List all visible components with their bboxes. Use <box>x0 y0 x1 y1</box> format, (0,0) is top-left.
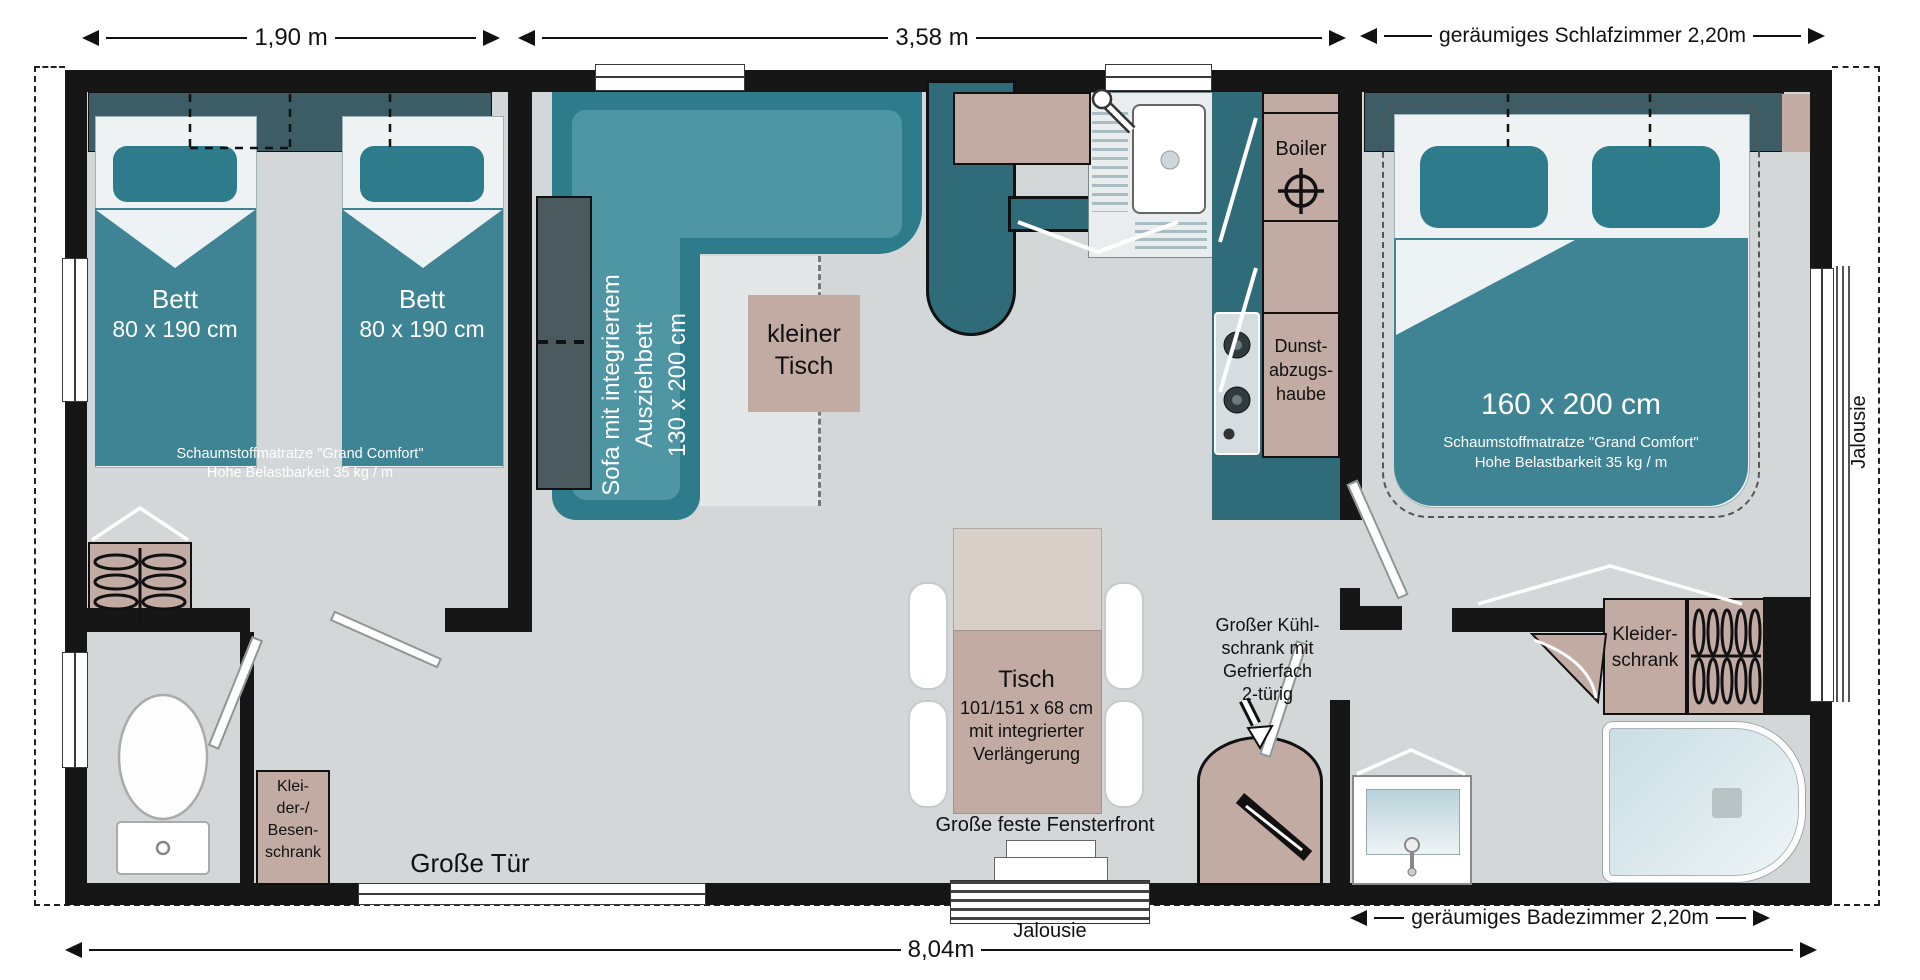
left-mattress-note-line2: Hohe Belastbarkeit 35 kg / m <box>130 465 470 481</box>
dim-bedroom-left-label: 1,90 m <box>254 24 327 52</box>
sofa-label-line1: Sofa mit integriertem <box>595 165 628 605</box>
dim-bathroom: geräumiges Badezimmer 2,20m <box>1350 906 1770 930</box>
sofa-armrest-cabinet <box>536 196 592 490</box>
small-table-label-line1: kleiner <box>748 320 860 349</box>
closet-label-line2: der-/ <box>256 800 330 818</box>
kitchen-counter-slab2 <box>1262 458 1340 520</box>
fridge-label-line4: 2-türig <box>1195 684 1340 705</box>
dim-total-width: 8,04m <box>65 936 1817 964</box>
dining-chair-1 <box>908 582 948 690</box>
plot-boundary-dashed-top-left <box>34 66 65 68</box>
dim-bathroom-label: geräumiges Badezimmer 2,20m <box>1411 906 1709 930</box>
dim-bedroom-right: geräumiges Schlafzimmer 2,20m <box>1360 24 1825 48</box>
closet-label-line3: Besen- <box>256 822 330 840</box>
washbasin-bowl <box>1366 789 1460 855</box>
kitchen-column-divider2 <box>1262 220 1340 222</box>
dim-living: 3,58 m <box>518 24 1346 52</box>
door-opening-grosse-tuer <box>358 883 706 905</box>
fridge-label-line1: Großer Kühl- <box>1195 615 1340 636</box>
double-bed-size-label: 160 x 200 cm <box>1394 388 1748 422</box>
floorplan: Bett 80 x 190 cm Bett 80 x 190 cm Schaum… <box>0 0 1920 980</box>
table-label-line4: Verlängerung <box>945 744 1108 765</box>
bed2-size-label: 80 x 190 cm <box>332 316 512 343</box>
wardrobe-label-line2: schrank <box>1603 650 1687 672</box>
shower-tub <box>1603 722 1805 882</box>
window-top-kitchen <box>1105 64 1212 91</box>
fensterfront-label: Große feste Fensterfront <box>930 814 1160 837</box>
hood-label-line2: abzugs- <box>1262 360 1340 381</box>
boiler-label: Boiler <box>1262 138 1340 161</box>
dining-chair-2 <box>908 700 948 808</box>
shutter-window-bottom <box>950 880 1150 924</box>
dim-total-width-label: 8,04m <box>908 936 975 964</box>
sink-drainer <box>1092 112 1128 212</box>
wall-wardrobe-right-block <box>1763 597 1812 715</box>
window-top-living <box>595 64 745 91</box>
sink-basin <box>1132 104 1206 214</box>
hood-label-line1: Dunst- <box>1262 336 1340 357</box>
bed2-pillow <box>360 146 484 202</box>
wall-bedroom-left-right <box>508 92 532 608</box>
cooktop <box>1214 312 1260 455</box>
wall-basin-niche <box>1330 700 1350 885</box>
wardrobe-right-hanger-cell <box>1687 598 1765 715</box>
right-mattress-note-line2: Hohe Belastbarkeit 35 kg / m <box>1394 454 1748 471</box>
table-label-line2: 101/151 x 68 cm <box>945 698 1108 719</box>
dining-chair-4 <box>1104 700 1144 808</box>
fridge-label-line3: Gefrierfach <box>1195 661 1340 682</box>
closet-label-line4: schrank <box>256 844 330 862</box>
dining-table-extension <box>953 528 1102 632</box>
shower-drain <box>1712 788 1742 818</box>
hood-label-line3: haube <box>1262 384 1340 405</box>
kitchen-counter-slab <box>1212 92 1262 520</box>
sofa-label-line3: 130 x 200 cm <box>661 165 694 605</box>
sofa-label-line2: Ausziehbett <box>628 165 661 605</box>
sink-drainer2 <box>1135 222 1207 252</box>
table-label-line3: mit integrierter <box>945 721 1108 742</box>
kitchen-column-divider1 <box>1262 112 1340 114</box>
wall-bathroom-top <box>1452 608 1605 632</box>
bed1-size-label: 80 x 190 cm <box>85 316 265 343</box>
sofa-label: Sofa mit integriertem Ausziehbett 130 x … <box>595 165 705 605</box>
dining-chair-3 <box>1104 582 1144 690</box>
right-mattress-note-line1: Schaumstoffmatratze "Grand Comfort" <box>1394 434 1748 451</box>
table-label-line1: Tisch <box>953 666 1100 694</box>
bed1-pillow <box>113 146 237 202</box>
wall-bedroom-left-corner <box>445 608 532 632</box>
kitchen-column-divider3 <box>1262 312 1340 314</box>
wall-kitchen-bedroom <box>1340 92 1362 520</box>
fridge-label-line2: schrank mit <box>1195 638 1340 659</box>
plot-boundary-dashed-top-right <box>1832 66 1880 68</box>
bed2-label: Bett <box>342 284 502 315</box>
window-left-wc <box>62 652 88 768</box>
jalousie-bottom-label: Jalousie <box>995 920 1105 943</box>
dim-bedroom-left: 1,90 m <box>82 24 500 52</box>
fridge <box>1197 736 1323 886</box>
dim-bedroom-right-label: geräumiges Schlafzimmer 2,20m <box>1439 24 1746 48</box>
small-table-label-line2: Tisch <box>748 352 860 381</box>
wall-wc-top <box>85 608 250 632</box>
dim-living-label: 3,58 m <box>895 24 968 52</box>
jalousie-side-label: Jalousie <box>1848 362 1872 502</box>
left-mattress-note-line1: Schaumstoffmatratze "Grand Comfort" <box>130 446 470 462</box>
bed1-label: Bett <box>95 284 255 315</box>
right-bedroom-corner-cabinet <box>1782 94 1810 152</box>
kitchen-upper-cabinet <box>953 92 1091 165</box>
wardrobe-label-line1: Kleider- <box>1603 624 1687 646</box>
closet-label-line1: Klei- <box>256 778 330 796</box>
kitchen-partition-arm <box>1008 196 1092 232</box>
grosse-tuer-label: Große Tür <box>390 848 550 879</box>
double-bed-pillow1 <box>1420 146 1548 228</box>
window-right-bedroom <box>1810 268 1834 702</box>
wall-bedroom-right-door-stub-h <box>1340 606 1402 630</box>
double-bed-pillow2 <box>1592 146 1720 228</box>
